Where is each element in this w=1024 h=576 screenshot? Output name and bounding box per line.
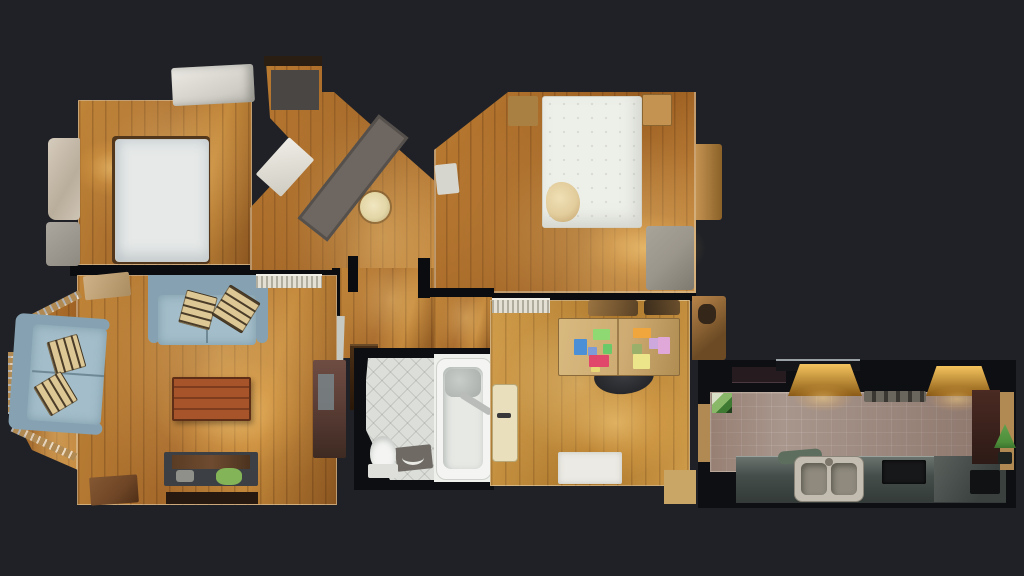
closet-tab-icon (692, 296, 726, 360)
floorplan-stage (0, 0, 1024, 576)
white-rug-icon (558, 452, 622, 484)
desk-icon (558, 318, 680, 376)
wall-stub (428, 288, 494, 297)
paper-green (593, 329, 610, 340)
faucet-icon (825, 458, 833, 466)
tv-bench-icon (164, 452, 258, 486)
paper-red (589, 355, 609, 367)
sink-bowl (801, 463, 827, 495)
dark-appliance (970, 470, 1000, 494)
grey-item (176, 470, 194, 482)
paper-pink (658, 337, 670, 354)
radiator-icon (492, 298, 550, 313)
sofa-back (148, 275, 268, 297)
tv-bench-top (172, 455, 250, 469)
plant-pot-icon (998, 452, 1012, 464)
wardrobe-top-icon (171, 64, 255, 106)
sink-icon (794, 456, 864, 502)
tall-unit-icon (972, 390, 1000, 464)
sink-bowl (831, 463, 857, 495)
storage-box-icon (83, 272, 131, 301)
door-leaf-icon (492, 384, 518, 462)
sofa-arm (256, 283, 268, 343)
paper-blue (574, 339, 587, 355)
desk-fold-line (617, 319, 619, 375)
coffee-table-icon (172, 377, 251, 421)
paper-olive (632, 344, 642, 354)
wall-shadow (166, 492, 258, 504)
wardrobe-left-icon (508, 96, 538, 126)
radiator-icon (256, 274, 322, 288)
front-door-icon (264, 56, 322, 66)
door-handle-icon (497, 413, 511, 418)
vent-grill-icon (864, 391, 926, 402)
doormat-icon (271, 70, 319, 110)
bath-mat-arc (402, 450, 424, 465)
wall-stub (348, 256, 358, 292)
side-table-icon (89, 474, 139, 505)
closet-clutter-icon (48, 138, 80, 220)
door-tab-icon (696, 144, 722, 220)
sofa-left (8, 313, 110, 435)
window-green-icon (712, 393, 732, 413)
shelf-clutter-icon (588, 300, 638, 316)
mattress-icon (115, 139, 209, 262)
paper-green-small (603, 344, 612, 354)
clothes-pile-icon (546, 182, 580, 222)
tall-cabinet-icon (313, 360, 346, 458)
wardrobe-right-icon (642, 94, 672, 126)
grey-unit-icon (646, 226, 694, 290)
paper-yellow (633, 354, 650, 369)
connector-path[interactable] (664, 470, 696, 504)
green-object-icon (216, 468, 242, 485)
closet-clutter (698, 304, 716, 324)
cabinet-panel (318, 374, 334, 410)
round-stool-icon (360, 192, 390, 222)
side-cabinet-icon (434, 163, 459, 195)
toilet-cistern (368, 464, 398, 478)
shelf-clutter-icon (644, 300, 680, 315)
closet-clutter-icon (46, 222, 80, 266)
sofa-top (148, 275, 268, 347)
bathtub-icon (436, 358, 492, 480)
hob-icon (882, 460, 926, 484)
paper-orange (633, 328, 651, 338)
worktop-light-icon (788, 364, 862, 396)
paper-yellow-small (591, 367, 600, 372)
